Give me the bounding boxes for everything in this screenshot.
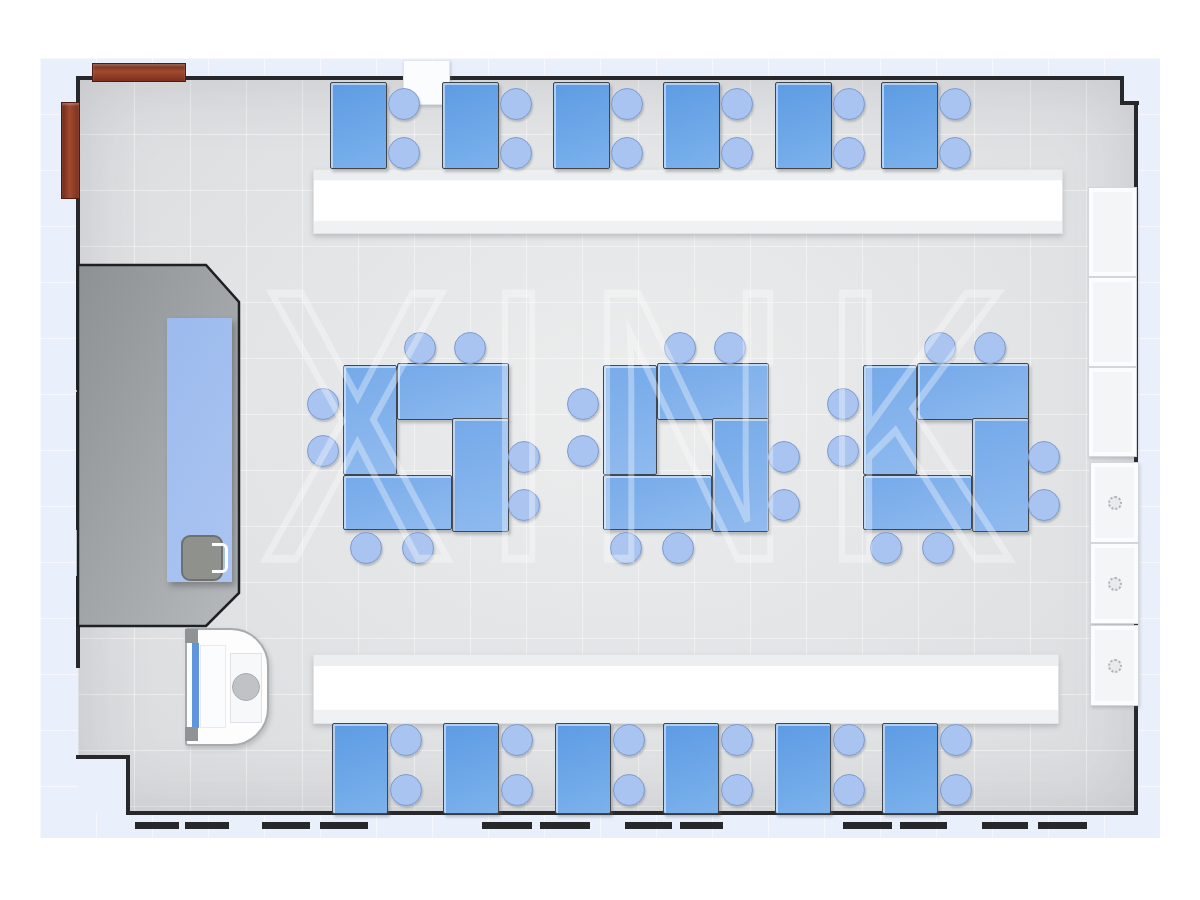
chair [768,441,800,473]
cluster-desk [603,475,712,530]
window-segment [185,822,229,829]
chair [664,332,696,364]
chair [833,88,865,120]
chair [714,332,746,364]
chair [390,774,422,806]
chair [827,388,859,420]
window-segment [1038,822,1087,829]
chair [508,489,540,521]
chair [610,532,642,564]
window-segment [900,822,947,829]
window-segment [540,822,590,829]
chair [404,332,436,364]
chair [833,137,865,169]
chair [721,774,753,806]
chair [611,88,643,120]
window-segment [482,822,532,829]
chair [721,724,753,756]
chair [940,774,972,806]
window-counter-bottom [313,654,1059,724]
wall-step-horizontal [76,755,130,759]
cluster-desk [397,363,509,420]
cluster-desk [343,475,452,530]
chair [501,774,533,806]
cluster-desk [343,365,397,475]
student-desk [443,723,499,814]
student-desk [330,82,387,169]
cluster-desk [917,363,1029,420]
chair [350,532,382,564]
student-desk [332,723,388,814]
student-desk [555,723,611,814]
wall-bottom [126,811,1138,815]
wood-cabinet-left [61,102,80,199]
student-desk [663,82,720,169]
student-desk [881,82,938,169]
student-desk [775,723,831,814]
storage-cabinet [1090,462,1139,543]
window-segment [625,822,672,829]
cluster-desk [863,475,972,530]
chair [1028,489,1060,521]
chair [827,435,859,467]
window-segment [982,822,1028,829]
chair [768,489,800,521]
cluster-desk [972,418,1029,532]
window-segment [680,822,723,829]
floor-notch-bottom-left [78,757,128,813]
chair [390,724,422,756]
window-segment [262,822,310,829]
round-knob-icon [1108,577,1122,591]
wall-top [76,76,1124,80]
chair [721,137,753,169]
storage-cabinet [1090,543,1139,624]
mount-bracket [185,727,198,741]
round-knob-icon [1108,659,1122,673]
storage-cabinet [1088,367,1137,457]
sink-drainboard [200,645,226,728]
chair [613,724,645,756]
chair [940,724,972,756]
chair [567,435,599,467]
chair [939,137,971,169]
storage-cabinet [1090,625,1139,706]
chair [500,137,532,169]
chair [567,388,599,420]
cluster-desk [452,418,509,532]
faucet-icon [212,543,228,573]
chair [454,332,486,364]
chair [508,441,540,473]
chair [500,88,532,120]
student-desk [442,82,499,169]
chair [939,88,971,120]
chair [402,532,434,564]
chair [613,774,645,806]
wall-step-vertical [126,755,130,815]
chair [388,137,420,169]
chair [307,388,339,420]
window-segment [135,822,179,829]
chair [974,332,1006,364]
cluster-desk [863,365,917,475]
storage-cabinet [1088,277,1137,367]
chair [662,532,694,564]
floor-plan-canvas: XINK [0,0,1200,900]
window-counter-top [313,169,1063,234]
chair [307,435,339,467]
window-segment [843,822,892,829]
wood-cabinet-top [92,63,186,82]
student-desk [663,723,719,814]
chair [1028,441,1060,473]
chair [870,532,902,564]
chair [501,724,533,756]
chair [721,88,753,120]
cluster-desk [712,418,769,532]
student-desk [775,82,832,169]
student-desk [882,723,938,814]
sink-station [185,628,269,746]
student-desk [553,82,610,169]
mount-bracket [185,629,198,643]
cluster-desk [603,365,657,475]
window-segment [320,822,368,829]
chair [388,88,420,120]
chair [611,137,643,169]
chair [922,532,954,564]
drain-circle-icon [232,673,260,701]
round-knob-icon [1108,496,1122,510]
chair [924,332,956,364]
chair [833,724,865,756]
chair [833,774,865,806]
cluster-desk [657,363,769,420]
sink-trim-strip [192,643,199,728]
storage-cabinet [1088,187,1137,277]
